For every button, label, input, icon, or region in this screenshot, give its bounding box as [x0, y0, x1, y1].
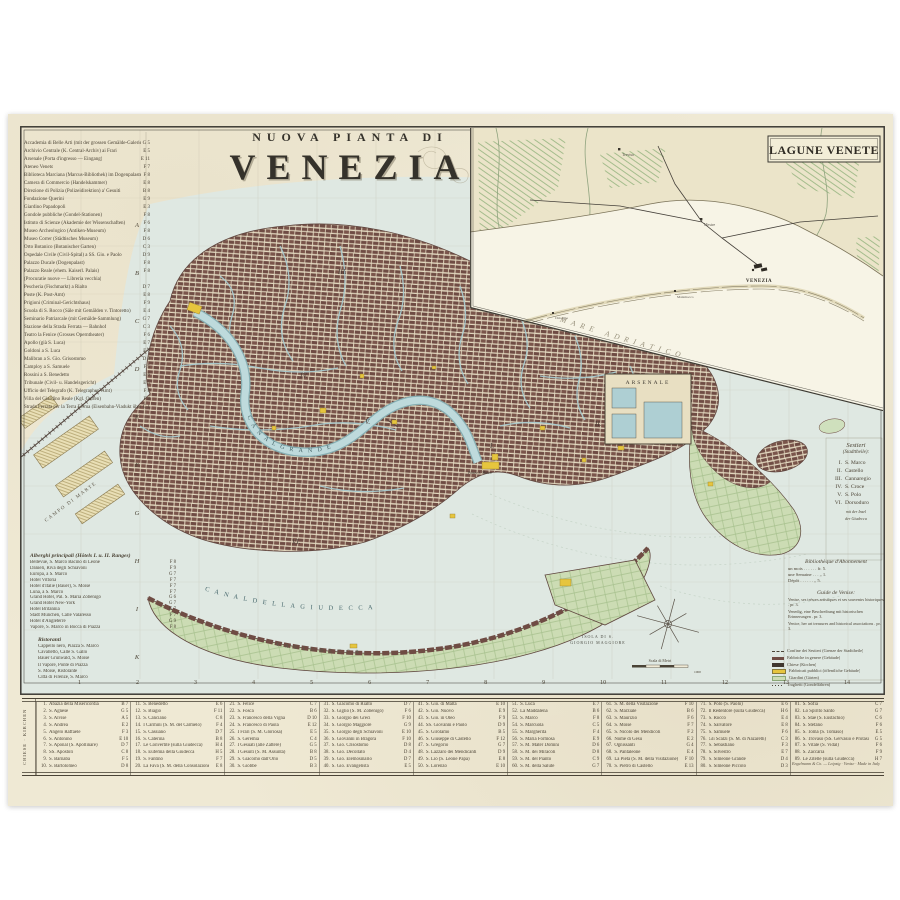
- church-grid-ref: C 9: [586, 757, 599, 764]
- church-number: 8.: [39, 750, 47, 757]
- church-grid-ref: D 10: [304, 716, 317, 723]
- church-name: S. Giacomo di Rialto: [332, 702, 398, 709]
- guide-title: Guide de Venise:: [788, 589, 884, 597]
- church-grid-ref: E 4: [681, 750, 694, 757]
- sestiere-name: S. Marco: [845, 459, 866, 467]
- church-entry: 53. S. Marco F 8: [510, 716, 599, 723]
- church-entry: 77. S. Sebastiano F 3: [699, 743, 788, 750]
- church-name: Le Convertite (sulla Giudecca): [143, 743, 209, 750]
- church-entry: 22. S. Fosca B 6: [227, 709, 316, 716]
- church-entry: 67. Ognissanti G 4: [604, 743, 693, 750]
- church-name: S. Girolamo: [426, 730, 492, 737]
- church-entry: 20. La Fava (S. M. della Consolazione) E…: [133, 764, 222, 771]
- church-number: 66.: [604, 737, 612, 744]
- church-grid-ref: C 8: [115, 750, 128, 757]
- church-name: S. Agnese: [49, 709, 115, 716]
- church-grid-ref: H 6: [775, 709, 788, 716]
- index-entry: Accademia di Belle Arti (mit der grossen…: [24, 140, 150, 148]
- church-entry: 58. S. M. dei Miracoli D 8: [510, 750, 599, 757]
- church-grid-ref: E 8: [209, 764, 222, 771]
- church-grid-ref: D 8: [398, 743, 411, 750]
- church-entry: 70. S. Pietro di Castello E 13: [604, 764, 693, 771]
- church-grid-ref: G 9: [398, 723, 411, 730]
- church-entry: 63. S. Maurizio F 6: [604, 716, 693, 723]
- church-name: S. M. della Visitazione: [614, 702, 680, 709]
- church-number: 83.: [793, 716, 801, 723]
- index-entry-name: Archivio Centrale (K. Central-Archiv) ai…: [24, 148, 117, 156]
- church-entry: 75. S. Samuele F 6: [699, 730, 788, 737]
- grid-column-number: 9: [542, 680, 545, 692]
- index-entry-grid-ref: E 8: [143, 180, 150, 188]
- church-number: 24.: [227, 723, 235, 730]
- church-grid-ref: F 6: [398, 709, 411, 716]
- publisher-imprint: Engelmann & Co. — Leipzig · Venise · Mad…: [696, 761, 880, 766]
- church-number: 21.: [227, 702, 235, 709]
- church-name: S. Rocco: [709, 716, 775, 723]
- church-grid-ref: F 2: [681, 730, 694, 737]
- church-table-side-label: CHIESE · KIRCHEN: [22, 699, 36, 775]
- church-grid-ref: F 3: [775, 743, 788, 750]
- index-entry-grid-ref: B 8: [143, 188, 150, 196]
- church-grid-ref: F 8: [586, 716, 599, 723]
- church-number: 22.: [227, 709, 235, 716]
- church-name: S. Silvestro: [709, 750, 775, 757]
- church-entry: 62. S. Marziale B 6: [604, 709, 693, 716]
- church-name: S. Margherita: [520, 730, 586, 737]
- index-entry-name: Palazzo Ducale (Dogenpalast): [24, 260, 85, 268]
- sestiere-name: S. Polo: [845, 491, 861, 499]
- church-entry: 32. S. Giglio (S. M. Zobenigo) F 6: [322, 709, 411, 716]
- svg-text:Scala di Metri: Scala di Metri: [649, 658, 673, 663]
- grid-column-number: 14: [844, 680, 850, 692]
- sestiere-entry: VI. Dorsoduro: [828, 499, 884, 507]
- church-number: 73.: [699, 716, 707, 723]
- church-name: S. Vitale (S. Vidal): [803, 743, 869, 750]
- church-number: 60.: [510, 764, 518, 771]
- church-name: S. Pietro di Castello: [614, 764, 680, 771]
- church-entry: 26. S. Geremia C 4: [227, 737, 316, 744]
- grid-row-letter: D: [130, 346, 144, 394]
- church-grid-ref: C 4: [304, 737, 317, 744]
- church-entry: 45. S. Girolamo B 5: [416, 730, 505, 737]
- church-grid-ref: E 5: [869, 730, 882, 737]
- church-grid-ref: F 10: [681, 757, 694, 764]
- church-name: S. Stae (S. Eustachio): [803, 716, 869, 723]
- church-number: 45.: [416, 730, 424, 737]
- church-entry: 72. Il Redentore (sulla Giudecca) H 6: [699, 709, 788, 716]
- church-entry: 33. S. Giorgio dei Greci F 10: [322, 716, 411, 723]
- church-number: 41.: [416, 702, 424, 709]
- church-name: S. Francesco della Vigna: [237, 716, 303, 723]
- church-number: 5.: [39, 730, 47, 737]
- church-name: S. Luca: [520, 702, 586, 709]
- svg-text:III.: III.: [337, 268, 347, 276]
- church-number: 67.: [604, 743, 612, 750]
- church-grid-ref: E 5: [398, 764, 411, 771]
- church-number: 62.: [604, 709, 612, 716]
- church-name: S. Aponal (S. Apollinare): [49, 743, 115, 750]
- hotel-grid-ref: F 8: [170, 625, 176, 631]
- church-name: S. Alvise: [49, 716, 115, 723]
- church-index-column: 1. Abazia della Misericordia B 7 2. S. A…: [36, 702, 130, 775]
- church-grid-ref: E 10: [115, 737, 128, 744]
- index-entry-name: Ufficio del Telegrafo (K. Telegraphen-Am…: [24, 388, 112, 396]
- church-number: 76.: [699, 737, 707, 744]
- church-grid-ref: E 4: [775, 716, 788, 723]
- church-entry: 76. Gli Scalzi (S. M. di Nazareth) C 3: [699, 737, 788, 744]
- svg-text:VI.: VI.: [292, 538, 301, 546]
- church-entry: 27. I Gesuati (alle Zattere) G 5: [227, 743, 316, 750]
- index-entry-name: Scuola di S. Rocco (Säle mit Gemälden v.…: [24, 308, 131, 316]
- church-entry: 50. S. Lorenzo E 10: [416, 764, 505, 771]
- church-name: S. Geremia: [237, 737, 303, 744]
- hotel-name: Vapore, S. Marco in Bocca di Piazza: [30, 625, 100, 631]
- church-name: Abazia della Misericordia: [49, 702, 115, 709]
- church-name: S. Lio (S. Leone Papa): [426, 757, 492, 764]
- index-entry: Ateneo Veneto F 7: [24, 164, 150, 172]
- index-entry-grid-ref: F 8: [143, 268, 150, 276]
- church-number: 23.: [227, 716, 235, 723]
- hotels-rows: Bellevue, S. Marco Bacino di Leone F 8 D…: [30, 560, 176, 631]
- index-entry-grid-ref: E 11: [141, 156, 150, 164]
- inset-town-mestre: Mestre: [704, 222, 715, 227]
- grid-column-number: 13: [783, 680, 789, 692]
- index-entry: Direzione di Polizia (Polizeidirektion) …: [24, 188, 150, 196]
- church-entry: 24. S. Francesco di Paola E 12: [227, 723, 316, 730]
- church-name: S. Giobbe: [237, 764, 303, 771]
- church-name: S. Giuseppe di Castello: [426, 737, 492, 744]
- index-entry-grid-ref: F 8: [143, 172, 150, 180]
- church-number: 36.: [322, 737, 330, 744]
- grid-column-number: 11: [661, 680, 667, 692]
- church-name: S. Polo (S. Paolo): [709, 702, 775, 709]
- index-entry-name: Seminario Patriarcale (mit Gemälde-Samml…: [24, 316, 121, 324]
- legend-label: Fabbricati pubblici (öffentliche Gebäude…: [789, 668, 860, 675]
- legend-entry: Fabbricati pubblici (öffentliche Gebäude…: [772, 668, 884, 675]
- church-name: I Frari (S. M. Gloriosa): [237, 730, 303, 737]
- grid-row-letter: I: [130, 586, 144, 634]
- church-name: S. Samuele: [709, 730, 775, 737]
- church-entry: 74. S. Salvatore E 8: [699, 723, 788, 730]
- church-number: 58.: [510, 750, 518, 757]
- index-entry-grid-ref: F 9: [143, 300, 150, 308]
- inset-title: LAGUNE VENETE: [769, 143, 879, 157]
- church-grid-ref: E 5: [304, 730, 317, 737]
- church-grid-ref: B 6: [304, 709, 317, 716]
- sestiere-entry: V. S. Polo: [828, 491, 884, 499]
- library-rows: un mois . . . . . . fr. 5.une Semaine . …: [788, 566, 884, 584]
- church-name: S. Gio. Evangelista: [332, 764, 398, 771]
- restaurants-header: Ristoranti: [38, 636, 168, 644]
- sestiere-numeral: I.: [828, 459, 842, 467]
- church-number: 32.: [322, 709, 330, 716]
- legend-label: Confine dei Sestieri (Grenze der Stadtth…: [787, 648, 863, 655]
- church-grid-ref: F 6: [681, 716, 694, 723]
- church-name: S. Giovanni in Bragora: [332, 737, 398, 744]
- church-entry: 21. S. Felice C 7: [227, 702, 316, 709]
- san-giorgio-label-1: ISOLA DI S.: [582, 634, 614, 639]
- index-entry-grid-ref: G 5: [143, 140, 150, 148]
- church-number: 57.: [510, 743, 518, 750]
- church-grid-ref: D 7: [398, 702, 411, 709]
- church-number: 75.: [699, 730, 707, 737]
- church-number: 43.: [416, 716, 424, 723]
- church-number: 49.: [416, 757, 424, 764]
- sestieri-key: Sestieri (Stadttheile): I. S. Marco II. …: [828, 442, 884, 521]
- index-entry-grid-ref: F 6: [143, 220, 150, 228]
- restaurants-rows: Cappello nero, Piazza S. MarcoCavalletto…: [38, 644, 168, 681]
- church-name: I Gesuati (alle Zattere): [237, 743, 303, 750]
- church-entry: 29. S. Giacomo dall'Orio D 5: [227, 757, 316, 764]
- church-number: 69.: [604, 757, 612, 764]
- church-grid-ref: G 4: [681, 743, 694, 750]
- church-name: S. Sebastiano: [709, 743, 775, 750]
- index-entry-name: Biblioteca Marciana (Marcus-Bibliothek) …: [24, 172, 141, 180]
- church-entry: 36. S. Giovanni in Bragora F 10: [322, 737, 411, 744]
- church-name: S. Gregorio: [426, 743, 492, 750]
- church-entry: 49. S. Lio (S. Leone Papa) E 8: [416, 757, 505, 764]
- grid-row-letter: E: [130, 394, 144, 442]
- church-entry: 6. S. Antonino E 10: [39, 737, 128, 744]
- church-entry: 4. S. Andrea E 2: [39, 723, 128, 730]
- index-entry-name: Rossini a S. Benedetto: [24, 372, 69, 380]
- church-grid-ref: F 6: [775, 730, 788, 737]
- grid-column-number: 5: [310, 680, 313, 692]
- sestiere-name: S. Croce: [845, 483, 864, 491]
- svg-text:IV.: IV.: [299, 372, 308, 380]
- inset-title-cartouche: LAGUNE VENETE: [768, 136, 880, 162]
- church-grid-ref: C 5: [586, 723, 599, 730]
- church-index-column: 41. S. Gio. di Malta E 10 42. S. Gio. Nu…: [413, 702, 507, 775]
- church-name: S. Maurizio: [614, 716, 680, 723]
- church-name: La Maddalena: [520, 709, 586, 716]
- map-title: VENEZIA: [220, 145, 480, 189]
- sestieri-title: Sestieri: [828, 442, 884, 450]
- church-number: 16.: [133, 737, 141, 744]
- index-entry-name: Ateneo Veneto: [24, 164, 53, 172]
- church-number: 13.: [133, 716, 141, 723]
- church-grid-ref: F 7: [209, 757, 222, 764]
- church-grid-ref: C 3: [775, 737, 788, 744]
- church-grid-ref: G 7: [586, 764, 599, 771]
- church-name: I Gesuiti (S. M. Assunta): [237, 750, 303, 757]
- svg-text:I.: I.: [489, 442, 494, 450]
- sestieri-note-1: mit der Insel: [828, 509, 884, 514]
- inset-town-treviso: Treviso: [622, 152, 634, 157]
- church-grid-ref: C 7: [869, 702, 882, 709]
- church-number: 29.: [227, 757, 235, 764]
- church-name: S. M. Mater Domini: [520, 743, 586, 750]
- hotel-entry: Vapore, S. Marco in Bocca di Piazza F 8: [30, 625, 176, 631]
- sestiere-entry: III. Cannaregio: [828, 475, 884, 483]
- sestieri-subtitle: (Stadttheile):: [828, 450, 884, 456]
- church-name: S. Gio. di Malta: [426, 702, 492, 709]
- legend-symbol: [772, 663, 784, 666]
- church-entry: 57. S. M. Mater Domini D 6: [510, 743, 599, 750]
- index-entry-grid-ref: E 9: [143, 196, 150, 204]
- index-entry-name: (Procuratie nuove — Libreria vecchia): [24, 276, 101, 284]
- index-entry-grid-ref: E 4: [143, 308, 150, 316]
- church-number: 64.: [604, 723, 612, 730]
- church-entry: 73. S. Rocco E 4: [699, 716, 788, 723]
- church-name: S. Lorenzo: [426, 764, 492, 771]
- church-grid-ref: E 10: [492, 702, 505, 709]
- index-entry-name: Fondazione Querini: [24, 196, 64, 204]
- church-grid-ref: B 6: [586, 709, 599, 716]
- church-number: 84.: [793, 723, 801, 730]
- index-entry-grid-ref: E 5: [143, 380, 150, 388]
- church-name: S. Gio. Crisostomo: [332, 743, 398, 750]
- church-number: 78.: [699, 750, 707, 757]
- church-index-column: 51. S. Luca E 7 52. La Maddalena B 6 53.…: [507, 702, 601, 775]
- church-name: S. M. della Salute: [520, 764, 586, 771]
- index-entry-grid-ref: E 3: [143, 204, 150, 212]
- church-grid-ref: E 2: [681, 737, 694, 744]
- church-grid-ref: C 6: [869, 716, 882, 723]
- church-grid-ref: E 9: [586, 737, 599, 744]
- church-entry: 55. S. Margherita F 4: [510, 730, 599, 737]
- index-entry-grid-ref: F 5: [143, 364, 150, 372]
- church-number: 50.: [416, 764, 424, 771]
- index-entry-name: Strada Ferrata per la Terra Ferma (Eisen…: [24, 404, 141, 412]
- church-number: 18.: [133, 750, 141, 757]
- church-grid-ref: C 7: [304, 702, 317, 709]
- church-name: S. Cassiano: [143, 730, 209, 737]
- map-title-kicker: NUOVA PIANTA DI: [220, 130, 480, 145]
- church-name: Gli Scalzi (S. M. di Nazareth): [709, 737, 775, 744]
- church-entry: 71. S. Polo (S. Paolo) E 6: [699, 702, 788, 709]
- church-entry: 44. SS. Giovanni e Paolo D 9: [416, 723, 505, 730]
- church-entry: 5. Angelo Raffaele F 3: [39, 730, 128, 737]
- church-entry: 84. S. Stefano F 6: [793, 723, 882, 730]
- index-entry-name: Poste (K. Post-Amt): [24, 292, 65, 300]
- sestiere-numeral: IV.: [828, 483, 842, 491]
- church-entry: 10. S. Bartolomeo D 8: [39, 764, 128, 771]
- church-grid-ref: E 6: [209, 702, 222, 709]
- church-name: S. Pantaleone: [614, 750, 680, 757]
- church-grid-ref: G 7: [492, 743, 505, 750]
- church-grid-ref: B 8: [209, 737, 222, 744]
- grid-row-letter: K: [130, 634, 144, 682]
- church-index-column: 31. S. Giacomo di Rialto D 7 32. S. Gigl…: [319, 702, 413, 775]
- church-number: 2.: [39, 709, 47, 716]
- church-name: S. Moisè: [614, 723, 680, 730]
- church-grid-ref: D 9: [492, 750, 505, 757]
- church-number: 88.: [793, 750, 801, 757]
- index-entry-name: Malibran a S. Gio. Grisostomo: [24, 356, 86, 364]
- index-entry-name: Orto Botanico (Botanischer Garten): [24, 244, 96, 252]
- church-name: Il Redentore (sulla Giudecca): [709, 709, 775, 716]
- church-entry: 37. S. Gio. Crisostomo D 8: [322, 743, 411, 750]
- church-entry: 15. S. Cassiano D 7: [133, 730, 222, 737]
- church-name: S. Canciano: [143, 716, 209, 723]
- sestiere-numeral: II.: [828, 467, 842, 475]
- church-name: S. Eufemia della Giudecca: [143, 750, 209, 757]
- church-entry: 64. S. Moisè F 7: [604, 723, 693, 730]
- church-index-column: 21. S. Felice C 7 22. S. Fosca B 6 23. S…: [224, 702, 318, 775]
- church-number: 26.: [227, 737, 235, 744]
- grid-row-letter: B: [130, 250, 144, 298]
- svg-text:V.: V.: [365, 418, 370, 426]
- church-grid-ref: E 10: [398, 730, 411, 737]
- church-number: 12.: [133, 709, 141, 716]
- church-grid-ref: A 5: [115, 716, 128, 723]
- church-number: 33.: [322, 716, 330, 723]
- church-grid-ref: F 11: [209, 709, 222, 716]
- church-name: S. Benedetto: [143, 702, 209, 709]
- church-entry: 30. S. Giobbe B 3: [227, 764, 316, 771]
- church-entry: 3. S. Alvise A 5: [39, 716, 128, 723]
- church-name: S. Antonino: [49, 737, 115, 744]
- church-number: 51.: [510, 702, 518, 709]
- grid-row-letter: F: [130, 442, 144, 490]
- church-name: S. Fantino: [143, 757, 209, 764]
- church-entry: 19. S. Fantino F 7: [133, 757, 222, 764]
- church-grid-ref: B 7: [115, 702, 128, 709]
- church-number: 81.: [793, 702, 801, 709]
- index-entry-grid-ref: F 8: [143, 228, 150, 236]
- church-grid-ref: E 7: [586, 702, 599, 709]
- legend-entry: Confine dei Sestieri (Grenze der Stadtth…: [772, 648, 884, 655]
- church-number: 19.: [133, 757, 141, 764]
- church-grid-ref: F 4: [209, 723, 222, 730]
- church-name: S. Maria Formosa: [520, 737, 586, 744]
- church-grid-ref: D 6: [586, 743, 599, 750]
- church-number: 35.: [322, 730, 330, 737]
- sestiere-name: Cannaregio: [845, 475, 871, 483]
- church-name: SS. Apostoli: [49, 750, 115, 757]
- church-entry: 82. Lo Spirito Santo G 7: [793, 709, 882, 716]
- church-number: 42.: [416, 709, 424, 716]
- church-entry: 60. S. M. della Salute G 7: [510, 764, 599, 771]
- church-entry: 78. S. Silvestro E 7: [699, 750, 788, 757]
- hotels-list: Alberghi principali (Hôtels I. u. II. Ra…: [30, 552, 176, 631]
- index-entry-grid-ref: F 8: [143, 388, 150, 396]
- church-name: SS. Giovanni e Paolo: [426, 723, 492, 730]
- grid-column-number: 2: [136, 680, 139, 692]
- church-number: 85.: [793, 730, 801, 737]
- church-number: 38.: [322, 750, 330, 757]
- church-entry: 47. S. Gregorio G 7: [416, 743, 505, 750]
- church-number: 9.: [39, 757, 47, 764]
- guide-entry: Venice, her art treasures and historical…: [788, 621, 884, 631]
- church-name: S. Marco: [520, 716, 586, 723]
- church-entry: 88. S. Zaccaria F 9: [793, 750, 882, 757]
- index-entry-name: Teatro la Fenice (Grosses Operntheater): [24, 332, 104, 340]
- church-grid-ref: B 6: [681, 709, 694, 716]
- grid-column-number: 8: [484, 680, 487, 692]
- church-name: S. Lazzaro dei Mendicanti: [426, 750, 492, 757]
- index-entry-name: Apollo (già S. Luca): [24, 340, 65, 348]
- index-entry-grid-ref: F 6: [143, 332, 150, 340]
- library-title: Bibliothèque d'Abonnement: [788, 558, 884, 566]
- church-name: S. Bartolomeo: [49, 764, 115, 771]
- grid-row-letter: G: [130, 490, 144, 538]
- legend-label: Fabbriche in genere (Gebäude): [787, 655, 840, 662]
- church-entry: 41. S. Gio. di Malta E 10: [416, 702, 505, 709]
- church-grid-ref: G 7: [869, 709, 882, 716]
- church-entry: 39. S. Gio. Elemosinario D 7: [322, 757, 411, 764]
- index-entry: Archivio Centrale (K. Central-Archiv) ai…: [24, 148, 150, 156]
- church-entry: 35. S. Giorgio degli Schiavoni E 10: [322, 730, 411, 737]
- church-grid-ref: B 3: [304, 764, 317, 771]
- index-entry-grid-ref: E 7: [143, 340, 150, 348]
- church-name: S. M. dei Miracoli: [520, 750, 586, 757]
- index-entry: Arsenale (Porta d'ingresso — Eingang) E …: [24, 156, 150, 164]
- church-grid-ref: E 2: [115, 723, 128, 730]
- church-name: La Pietà (S. M. della Visitazione): [614, 757, 680, 764]
- church-entry: 42. S. Gio. Nuovo E 9: [416, 709, 505, 716]
